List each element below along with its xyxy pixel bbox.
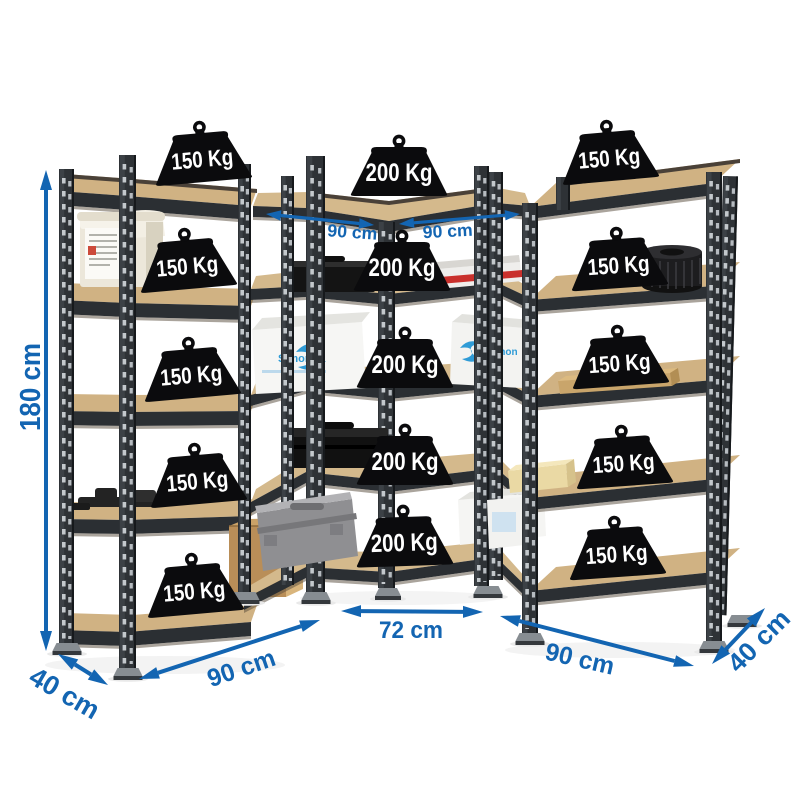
svg-text:150 Kg: 150 Kg [588, 348, 652, 378]
svg-text:180 cm: 180 cm [15, 343, 47, 431]
svg-text:150 Kg: 150 Kg [170, 143, 234, 174]
svg-text:200 Kg: 200 Kg [369, 254, 436, 282]
svg-text:150 Kg: 150 Kg [585, 539, 649, 569]
svg-text:90 cm: 90 cm [327, 220, 378, 243]
svg-text:90 cm: 90 cm [422, 220, 473, 243]
svg-text:150 Kg: 150 Kg [592, 448, 656, 478]
svg-text:200 Kg: 200 Kg [366, 159, 433, 187]
svg-text:200 Kg: 200 Kg [372, 351, 439, 379]
svg-text:150 Kg: 150 Kg [165, 465, 229, 496]
svg-text:200 Kg: 200 Kg [372, 448, 439, 476]
svg-text:72 cm: 72 cm [379, 617, 443, 644]
svg-text:150 Kg: 150 Kg [155, 250, 219, 281]
svg-text:150 Kg: 150 Kg [162, 575, 226, 606]
svg-text:150 Kg: 150 Kg [577, 142, 641, 173]
svg-text:150 Kg: 150 Kg [159, 359, 223, 390]
svg-text:200 Kg: 200 Kg [370, 528, 438, 558]
svg-text:150 Kg: 150 Kg [587, 250, 651, 280]
